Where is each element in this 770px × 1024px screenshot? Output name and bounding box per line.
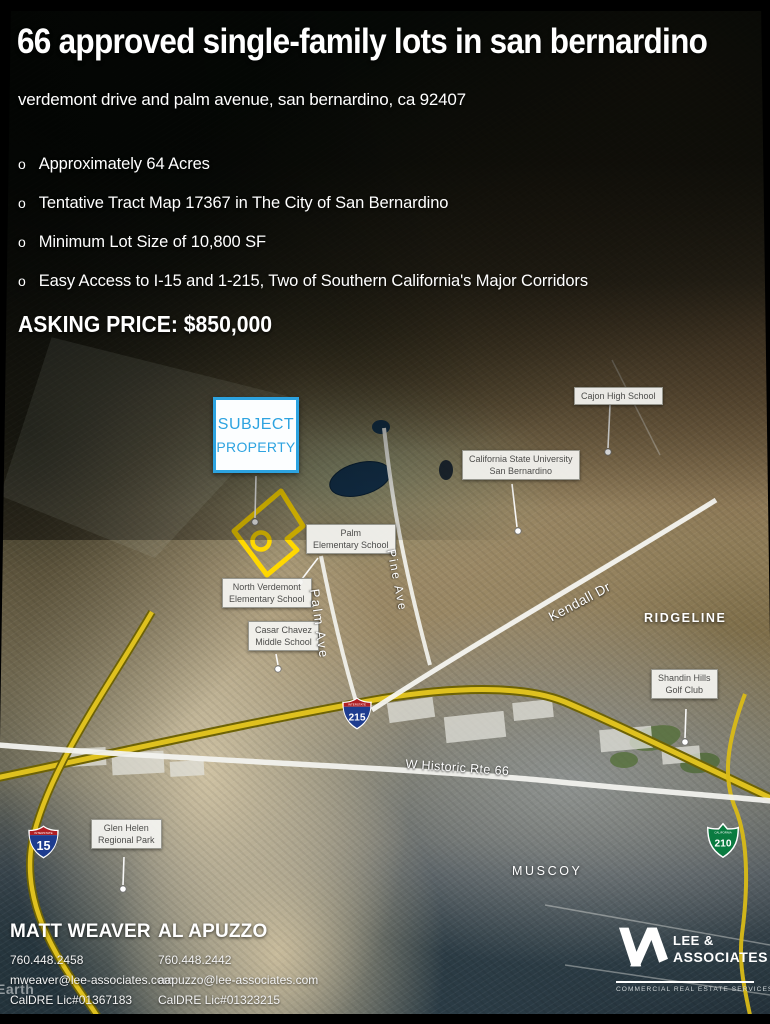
contact-al-apuzzo: AL APUZZO 760.448.2442 aapuzzo@lee-assoc… xyxy=(158,921,318,1010)
subject-property-callout: SUBJECT PROPERTY xyxy=(213,397,299,473)
shield-number: 215 xyxy=(348,713,365,724)
bullet-text: Easy Access to I-15 and 1-215, Two of So… xyxy=(39,272,588,291)
map-label-casar-chavez: Casar Chavez Middle School xyxy=(248,621,319,651)
lee-associates-logo-icon xyxy=(616,924,668,975)
contact-name: MATT WEAVER xyxy=(10,921,174,943)
contact-license: CalDRE Lic#01323215 xyxy=(158,990,318,1010)
label-line: Cajon High School xyxy=(581,390,656,402)
bullet-item: o Easy Access to I-15 and 1-215, Two of … xyxy=(18,272,588,291)
label-line: California State University xyxy=(469,453,573,465)
contact-name: AL APUZZO xyxy=(158,921,318,943)
label-line: Shandin Hills xyxy=(658,672,711,684)
shield-number: 15 xyxy=(37,839,51,853)
interstate-15-shield: INTERSTATE 15 xyxy=(27,817,60,867)
contact-license: CalDRE Lic#01367183 xyxy=(10,990,174,1010)
callout-line1: SUBJECT xyxy=(218,416,294,434)
shield-number: 210 xyxy=(715,838,732,849)
label-line: Golf Club xyxy=(658,684,711,696)
logo-tagline: COMMERCIAL REAL ESTATE SERVICES xyxy=(616,986,758,993)
california-210-shield: CALIFORNIA 210 xyxy=(707,820,739,861)
page-title: 66 approved single-family lots in san be… xyxy=(17,22,707,62)
area-label-ridgeline: RIDGELINE xyxy=(644,611,726,625)
logo-divider xyxy=(616,981,754,983)
interstate-215-shield: INTERSTATE 215 xyxy=(341,689,373,738)
map-label-glen-helen: Glen Helen Regional Park xyxy=(91,819,162,849)
map-label-palm-elementary: Palm Elementary School xyxy=(306,524,396,554)
frame-top xyxy=(0,0,770,11)
callout-line2: PROPERTY xyxy=(216,439,295,455)
bullet-item: o Minimum Lot Size of 10,800 SF xyxy=(18,233,588,252)
bullet-marker: o xyxy=(18,234,26,250)
label-line: Regional Park xyxy=(98,834,155,846)
asking-price: ASKING PRICE: $850,000 xyxy=(18,311,272,338)
label-line: Casar Chavez xyxy=(255,624,312,636)
bullet-marker: o xyxy=(18,156,26,172)
shield-caption: INTERSTATE xyxy=(348,703,366,707)
logo-name-line1: LEE & xyxy=(673,933,768,949)
map-label-shandin-hills: Shandin Hills Golf Club xyxy=(651,669,718,699)
map-label-csu-san-bernardino: California State University San Bernardi… xyxy=(462,450,580,480)
shield-caption: INTERSTATE xyxy=(34,831,52,835)
bullet-text: Tentative Tract Map 17367 in The City of… xyxy=(39,194,449,213)
bullet-text: Minimum Lot Size of 10,800 SF xyxy=(39,233,266,252)
bullet-text: Approximately 64 Acres xyxy=(39,155,210,174)
contact-phone: 760.448.2458 xyxy=(10,950,174,970)
bullet-marker: o xyxy=(18,195,26,211)
lee-associates-logo: LEE & ASSOCIATES COMMERCIAL REAL ESTATE … xyxy=(616,924,758,993)
bullet-item: o Tentative Tract Map 17367 in The City … xyxy=(18,194,588,213)
shield-caption: CALIFORNIA xyxy=(714,831,731,835)
bullet-marker: o xyxy=(18,273,26,289)
label-line: Middle School xyxy=(255,636,312,648)
feature-bullets: o Approximately 64 Acres o Tentative Tra… xyxy=(18,155,588,311)
contact-matt-weaver: MATT WEAVER 760.448.2458 mweaver@lee-ass… xyxy=(10,921,174,1010)
page-subtitle: verdemont drive and palm avenue, san ber… xyxy=(18,90,466,110)
flyer-page: 66 approved single-family lots in san be… xyxy=(0,0,770,1024)
label-line: North Verdemont xyxy=(229,581,305,593)
logo-name-line2: ASSOCIATES xyxy=(673,949,768,966)
frame-bottom xyxy=(0,1014,770,1024)
label-line: Glen Helen xyxy=(98,822,155,834)
bullet-item: o Approximately 64 Acres xyxy=(18,155,588,174)
contact-phone: 760.448.2442 xyxy=(158,950,318,970)
map-label-cajon-high-school: Cajon High School xyxy=(574,387,663,405)
contact-email: aapuzzo@lee-associates.com xyxy=(158,970,318,990)
area-label-muscoy: MUSCOY xyxy=(512,864,582,878)
map-label-north-verdemont: North Verdemont Elementary School xyxy=(222,578,312,608)
label-line: Elementary School xyxy=(313,539,389,551)
label-line: Elementary School xyxy=(229,593,305,605)
label-line: Palm xyxy=(313,527,389,539)
contact-email: mweaver@lee-associates.com xyxy=(10,970,174,990)
label-line: San Bernardino xyxy=(469,465,573,477)
